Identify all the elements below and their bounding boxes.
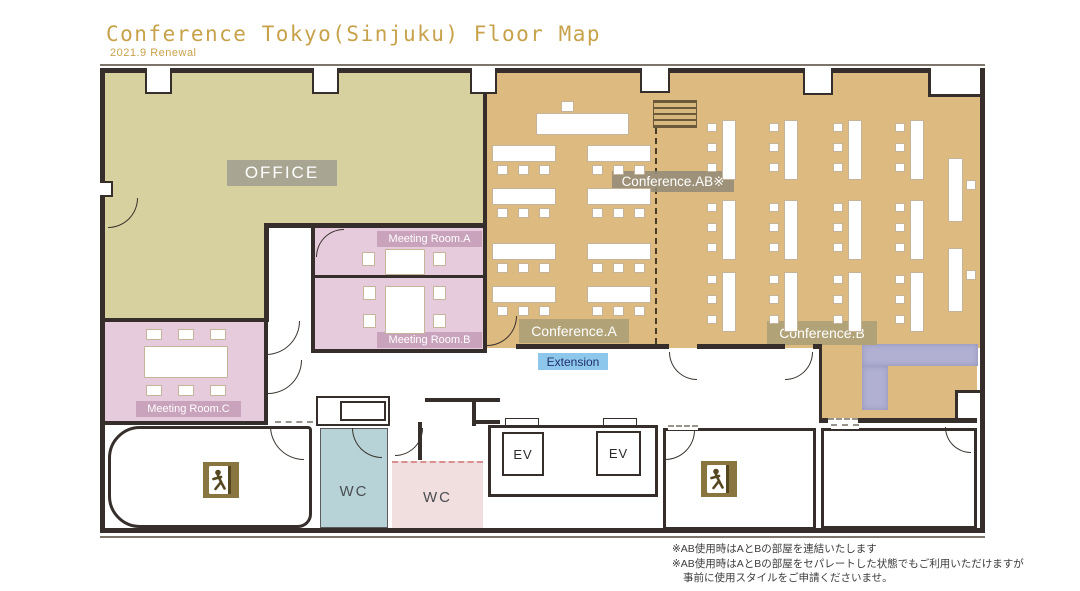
chair [833,163,843,172]
chair [497,263,508,273]
chair [769,315,779,324]
table [910,200,924,260]
table [385,286,425,334]
window-notch [312,68,339,94]
chair [539,263,550,273]
outer-line-top [100,64,985,66]
chair [769,243,779,252]
wall [264,223,269,318]
elevator-1-label: EV [513,447,532,462]
table [144,346,228,378]
chair [497,208,508,218]
chair [895,295,905,304]
entrance-gap [100,181,113,197]
office-label-text: OFFICE [245,163,319,183]
chair [895,243,905,252]
chair [433,252,446,266]
chair [592,263,603,273]
conference-a-label: Conference.A [519,319,629,343]
outer-line-bottom [100,536,985,538]
wc-right-room: WC [392,461,483,528]
chair [613,208,624,218]
chair [634,165,645,175]
meeting-room-a-label: Meeting Room.A [377,231,482,247]
chair [634,208,645,218]
chair [833,315,843,324]
extension-label-text: Extension [547,355,600,369]
chair [433,286,446,300]
lounge-sofa-vertical [862,366,888,410]
wall-step [955,390,980,418]
threshold-dashed [828,418,858,423]
chair [613,165,624,175]
meeting-room-b-label-text: Meeting Room.B [389,334,471,346]
chair [613,263,624,273]
chair [634,306,645,316]
table [385,249,425,275]
chair [895,315,905,324]
chair [833,123,843,132]
wc-left-label: WC [321,483,387,500]
chair [592,165,603,175]
chair [497,306,508,316]
lounge-sofa-horizontal [862,344,978,366]
elevator-door-gap [603,418,637,426]
chair [833,275,843,284]
chair [518,165,529,175]
window-notch [145,68,172,94]
chair [178,329,194,340]
table [848,120,862,180]
wall [472,420,500,424]
chair [769,143,779,152]
meeting-room-a-label-text: Meeting Room.A [389,233,471,245]
table [492,188,556,205]
chair [769,295,779,304]
meeting-room-c-label: Meeting Room.C [136,401,241,417]
wall [100,68,985,73]
chair [561,101,574,112]
wall [264,223,487,228]
door-arc [268,360,302,394]
movable-partition-line [655,128,657,344]
meeting-room-b-label: Meeting Room.B [377,332,482,348]
chair [895,123,905,132]
page-title: Conference Tokyo(Sinjuku) Floor Map [106,22,601,46]
office-area [105,73,483,223]
table [587,145,651,162]
chair [769,275,779,284]
chair [539,208,550,218]
chair [433,314,446,328]
table [722,272,736,332]
wall [105,318,269,322]
wall [311,349,487,353]
office-area-lower [105,223,264,318]
footnotes: ※AB使用時はAとBの部屋を連結いたします ※AB使用時はAとBの部屋をセパレー… [672,542,1024,586]
elevator-1: EV [502,432,544,476]
chair [895,163,905,172]
wall [483,73,487,349]
wall [697,344,785,349]
table [948,248,963,312]
utility-sink [340,401,386,421]
door-arc [266,321,300,355]
chair [895,275,905,284]
table [784,200,798,260]
threshold-dashed [831,424,859,429]
emergency-exit-icon [203,462,239,498]
chair [518,208,529,218]
floor-plan: WC WC EV EV [100,68,985,533]
elevator-door-gap [505,418,539,426]
wall [105,421,266,425]
chair [634,263,645,273]
table [784,120,798,180]
chair [592,306,603,316]
chair [146,385,162,396]
wall [819,348,822,420]
footnote-line: ※AB使用時はAとBの部屋をセパレートした状態でもご利用いただけますが [672,557,1024,572]
elevator-2: EV [596,431,641,476]
chair [895,203,905,212]
chair [769,223,779,232]
chair [833,203,843,212]
table [722,120,736,180]
table [722,200,736,260]
partition-stack [653,100,697,128]
table [492,243,556,260]
window-notch [803,68,833,95]
wall [657,344,669,349]
wall [315,275,483,278]
chair [539,306,550,316]
wall [425,398,500,402]
table [587,286,651,303]
table [848,200,862,260]
chair [769,203,779,212]
table [948,158,963,222]
conference-a-label-text: Conference.A [531,323,617,339]
door-arc [669,352,697,380]
table [587,188,651,205]
chair [769,123,779,132]
chair [966,180,976,190]
chair [539,165,550,175]
footnote-line: ※AB使用時はAとBの部屋を連結いたします [672,542,1024,557]
meeting-room-c-label-text: Meeting Room.C [147,403,230,415]
wc-right-label: WC [392,489,483,506]
chair [966,270,976,280]
chair [518,306,529,316]
chair [833,295,843,304]
table [848,272,862,332]
chair [707,203,717,212]
chair [210,385,226,396]
chair [210,329,226,340]
table [910,272,924,332]
chair [707,143,717,152]
threshold-dashed [668,425,698,430]
door-arc [785,352,813,380]
table [784,272,798,332]
window-notch [470,68,497,94]
page-subtitle: 2021.9 Renewal [110,47,197,59]
threshold-dashed [275,421,313,426]
wall [100,68,105,533]
table [492,145,556,162]
chair [707,123,717,132]
office-label: OFFICE [227,160,337,186]
table [536,113,629,135]
table [587,243,651,260]
chair [146,329,162,340]
chair [613,306,624,316]
chair [707,295,717,304]
table [910,120,924,180]
elevator-2-label: EV [609,446,628,461]
table [492,286,556,303]
floor-map-page: Conference Tokyo(Sinjuku) Floor Map 2021… [0,0,1080,591]
chair [497,165,508,175]
chair [833,223,843,232]
chair [362,252,375,266]
wall [311,228,315,349]
chair [363,286,376,300]
wall [980,68,985,533]
chair [363,314,376,328]
wall [516,344,657,349]
emergency-exit-icon [701,461,737,497]
chair [895,143,905,152]
chair [833,243,843,252]
chair [707,243,717,252]
chair [895,223,905,232]
chair [518,263,529,273]
wall-corner-step [928,68,980,97]
chair [707,163,717,172]
chair [833,143,843,152]
chair [707,275,717,284]
chair [707,315,717,324]
footnote-line: 事前に使用スタイルをご申請くださいませ。 [672,571,1024,586]
chair [707,223,717,232]
extension-label: Extension [538,353,608,370]
chair [592,208,603,218]
chair [769,163,779,172]
window-notch [640,68,670,93]
chair [178,385,194,396]
